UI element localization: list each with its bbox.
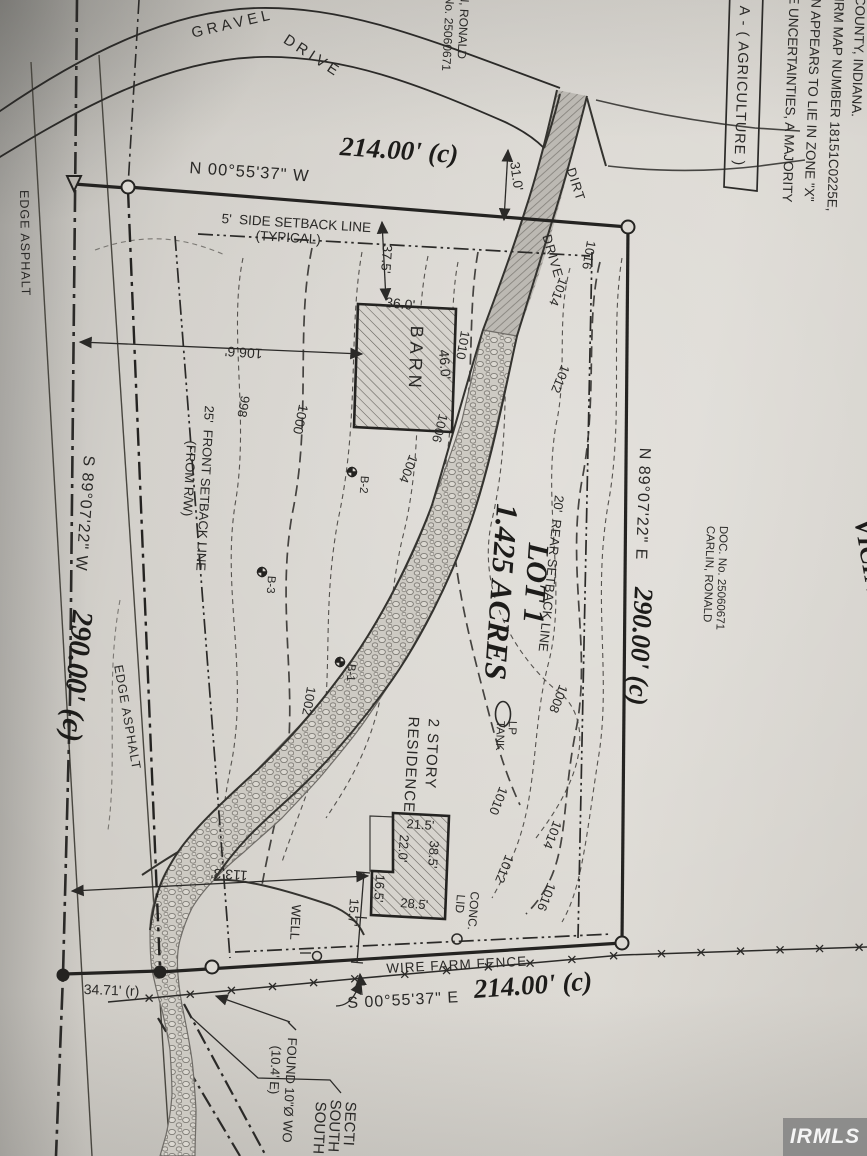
survey-labels: GRAVELDRIVEDIRTDRIVEN 00°55'37" W214.00'… xyxy=(0,0,867,1156)
c1002-label: 1002 xyxy=(300,686,318,717)
rd-16-5-label: 16.5' xyxy=(372,874,387,903)
rd-22-0-label: 22.0' xyxy=(396,834,411,863)
c1014a-label: 1014 xyxy=(547,276,570,308)
dim-113-3-label: 113.3' xyxy=(210,866,248,883)
flood-1-label: LE UNCERTAINTIES, A MAJORITY xyxy=(780,0,801,203)
rd-28-5-label: 28.5' xyxy=(400,896,429,911)
edge-asphalt-2-label: EDGE ASPHALT xyxy=(112,664,143,771)
dim-34-71-label: 34.71' (r) xyxy=(84,982,140,998)
front-setback-1-label: 25' FRONT SETBACK LINE xyxy=(194,405,216,571)
c1004-label: 1004 xyxy=(397,453,420,485)
irmls-watermark: IRMLS xyxy=(783,1118,867,1156)
east-distance-label: 290.00' (c) xyxy=(624,587,657,707)
west-distance-label: 290.00' (c) xyxy=(56,609,97,743)
zoning-label: A - ( AGRICULTURE ) xyxy=(731,5,751,166)
carlin-2-label: DOC. No. 25060671 xyxy=(713,526,728,631)
c1008-label: 1008 xyxy=(547,683,570,715)
c1012a-label: 1012 xyxy=(549,363,572,395)
c1000-label: 1000 xyxy=(291,403,310,435)
rd-15-7-label: 15.7' xyxy=(346,898,361,927)
b2-label: B-2 xyxy=(356,475,369,494)
c1006-label: 1006 xyxy=(430,413,450,444)
barn-dim-46-label: 46.0' xyxy=(437,349,453,380)
c1016b-label: 1016 xyxy=(535,881,558,913)
adjoiner-1-label: N, RONALD xyxy=(456,0,471,59)
north-bearing-label: N 00°55'37" W xyxy=(189,160,310,185)
road-name-1-label: GRAVEL xyxy=(190,7,275,40)
barn-label-label: BARN xyxy=(406,325,426,392)
section-3-label: SECTI xyxy=(341,1101,358,1146)
dim-106-6-label: 106.6' xyxy=(224,344,263,361)
conc-2-label: LID xyxy=(453,894,467,914)
b1-label: B-1 xyxy=(343,663,356,682)
north-distance-label: 214.00' (c) xyxy=(339,133,459,168)
flood-4-label: COUNTY, INDIANA. xyxy=(849,0,867,117)
c998-label: 998 xyxy=(235,395,252,419)
b3-label: B-3 xyxy=(263,575,276,594)
vicinity-label: VICINITY MAP xyxy=(849,516,867,702)
front-setback-2-label: (FROM R/W) xyxy=(181,440,198,516)
lot-area-label: 1.425 ACRES xyxy=(480,503,523,681)
found-2-label: (10.4' E) xyxy=(267,1045,283,1094)
c1014b-label: 1014 xyxy=(541,819,564,851)
dim-31-0-label: 31.0' xyxy=(508,161,525,191)
c1012b-label: 1012 xyxy=(493,853,516,885)
dim-37-5-label: 37.5' xyxy=(379,244,394,274)
lp-2-label: TANK xyxy=(492,721,505,751)
well-label: WELL xyxy=(288,904,303,940)
side-setback-2-label: (TYPICAL) xyxy=(255,229,321,246)
adjoiner-2-label: No. 25060671 xyxy=(440,0,456,71)
barn-dim-36-label: 36.0' xyxy=(385,295,416,312)
south-bearing-label: S 00°55'37" E xyxy=(347,990,459,1012)
conc-1-label: CONC. xyxy=(466,891,481,931)
c1010b-label: 1010 xyxy=(487,785,510,817)
dirt-1-label: DIRT xyxy=(565,166,588,202)
east-bearing-label: N 89°07'22" E xyxy=(632,447,652,560)
road-name-2-label: DRIVE xyxy=(281,32,344,80)
edge-asphalt-1-label: EDGE ASPHALT xyxy=(18,190,32,296)
survey-photo: GRAVELDRIVEDIRTDRIVEN 00°55'37" W214.00'… xyxy=(0,0,867,1156)
west-bearing-label: S 89°07'22" W xyxy=(72,455,96,572)
res-1-label: 2 STORY xyxy=(422,718,441,789)
south-distance-label: 214.00' (c) xyxy=(473,968,593,1003)
lp-1-label: LP xyxy=(505,721,517,735)
flood-3-label: FIRM MAP NUMBER 18151C0225E, xyxy=(825,0,846,212)
res-2-label: RESIDENCE xyxy=(401,716,421,813)
c1010a-label: 1010 xyxy=(454,330,472,361)
dirt-2-label: DRIVE xyxy=(541,233,566,280)
c1016a-label: 1016 xyxy=(580,240,598,271)
flood-2-label: ON APPEARS TO LIE IN ZONE "X" xyxy=(802,0,823,202)
rd-38-5-label: 38.5' xyxy=(426,840,441,869)
rd-21-5-label: 21.5' xyxy=(406,817,435,832)
